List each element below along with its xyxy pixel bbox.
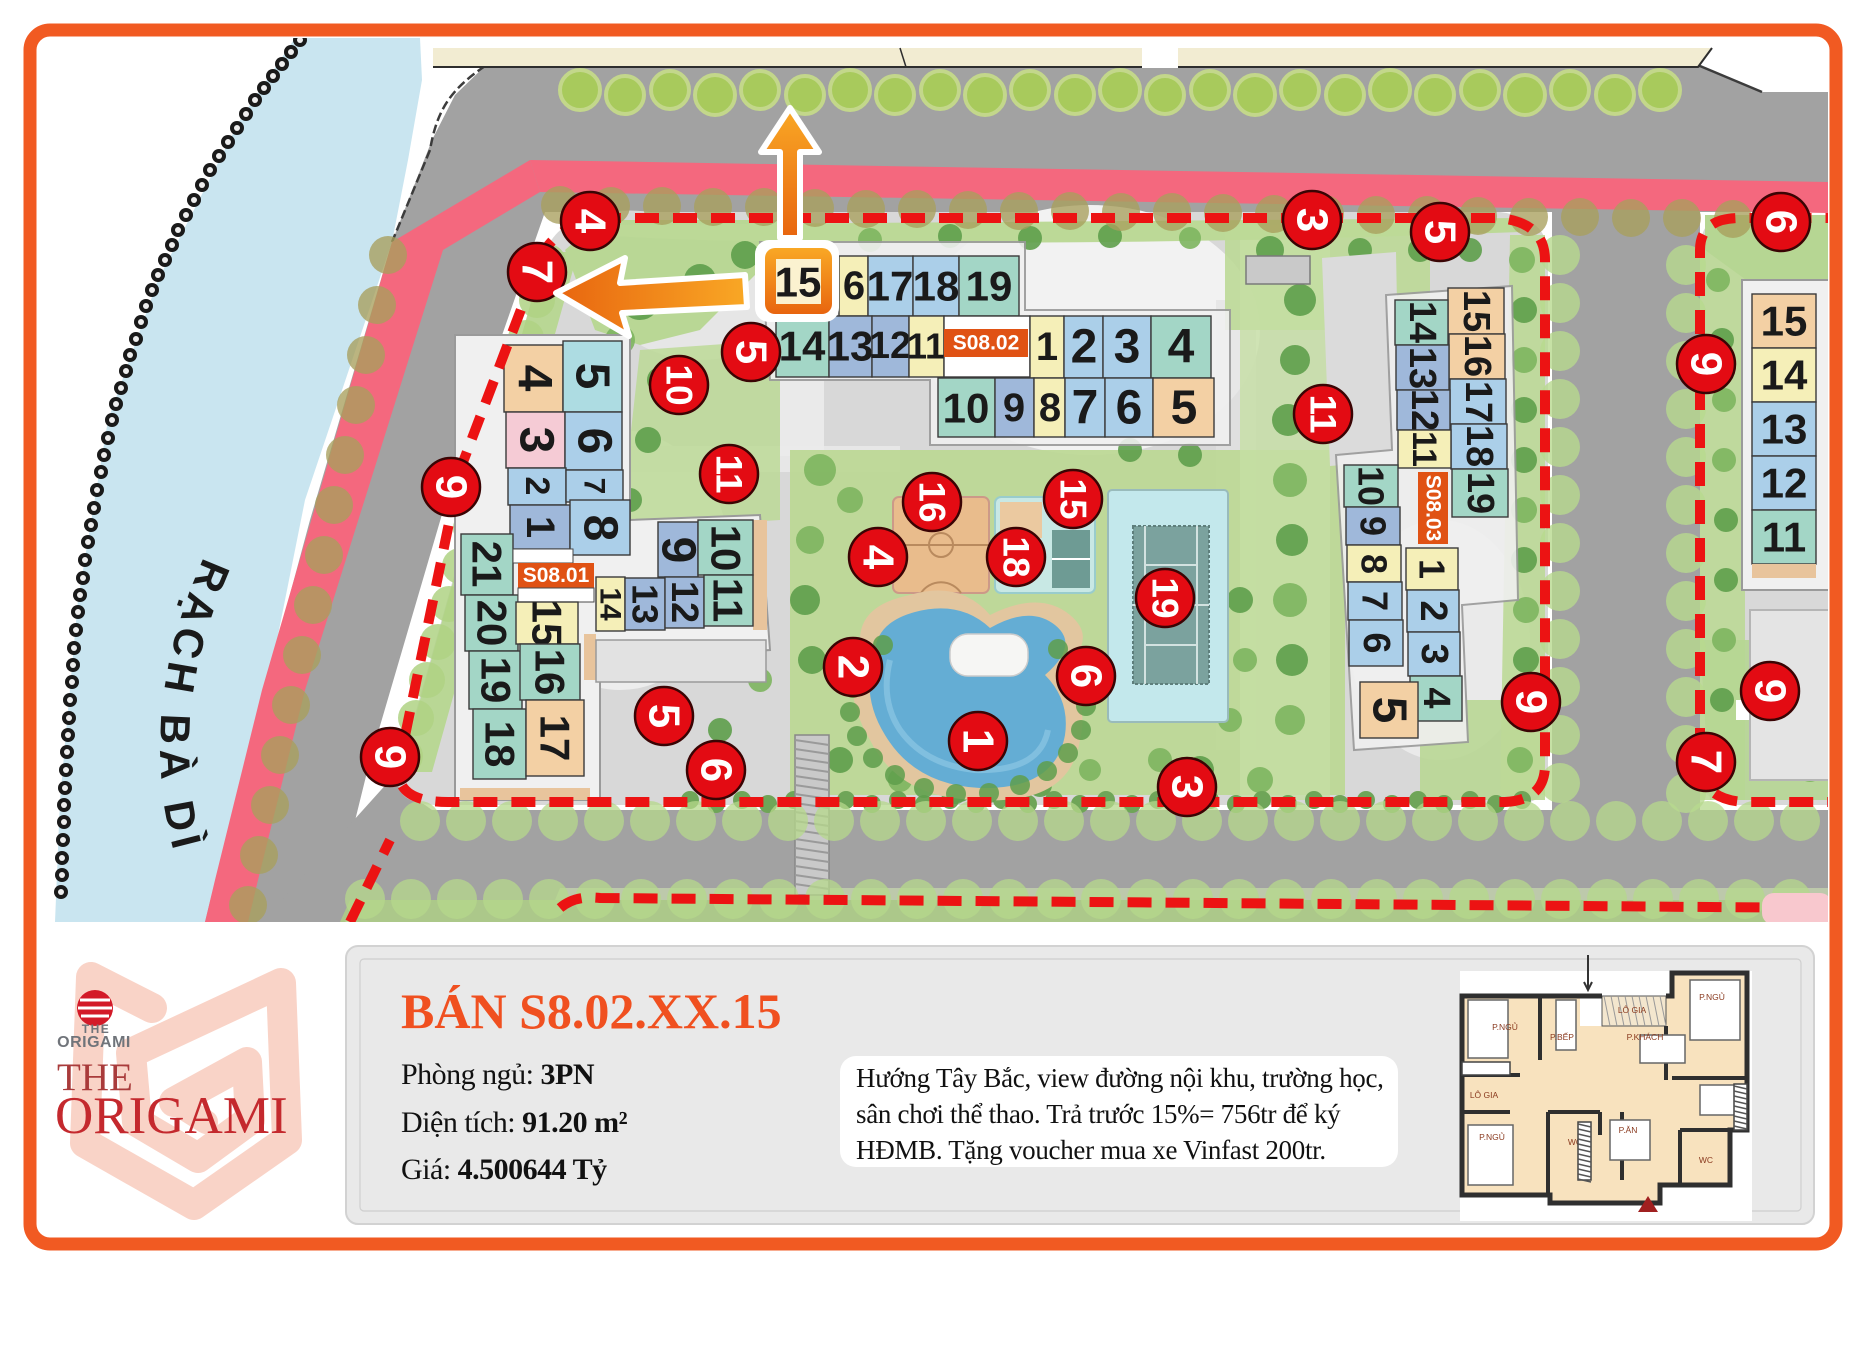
- svg-text:9: 9: [366, 745, 415, 769]
- svg-text:P.NGỦ: P.NGỦ: [1492, 1021, 1518, 1032]
- svg-text:3: 3: [1114, 321, 1141, 374]
- svg-text:S08.03: S08.03: [1422, 475, 1445, 542]
- svg-text:13: 13: [1401, 347, 1443, 389]
- svg-text:ORIGAMI: ORIGAMI: [57, 1034, 131, 1051]
- svg-text:15: 15: [1053, 478, 1094, 519]
- svg-text:18: 18: [477, 721, 524, 768]
- svg-text:18: 18: [913, 263, 960, 310]
- svg-text:10: 10: [1351, 466, 1392, 506]
- svg-text:5: 5: [727, 340, 776, 364]
- svg-text:9: 9: [1507, 690, 1556, 714]
- svg-text:2: 2: [518, 477, 556, 496]
- svg-text:11: 11: [907, 326, 945, 367]
- svg-text:P.NGỦ: P.NGỦ: [1699, 991, 1725, 1002]
- svg-text:6: 6: [692, 758, 741, 782]
- svg-text:9: 9: [1353, 516, 1394, 536]
- svg-text:9: 9: [427, 475, 476, 499]
- svg-text:13: 13: [625, 584, 666, 624]
- svg-text:6: 6: [843, 264, 865, 308]
- svg-text:5: 5: [1416, 220, 1465, 244]
- svg-text:3: 3: [1163, 775, 1212, 799]
- svg-text:18: 18: [996, 536, 1037, 577]
- svg-text:17: 17: [532, 715, 579, 762]
- svg-text:7: 7: [1072, 382, 1099, 435]
- svg-text:8: 8: [574, 515, 627, 542]
- svg-text:12: 12: [663, 581, 705, 623]
- svg-text:1: 1: [954, 729, 1003, 753]
- svg-text:15: 15: [1455, 290, 1497, 332]
- svg-text:12: 12: [869, 325, 911, 367]
- svg-text:Phòng ngủ: 3PN: Phòng ngủ: 3PN: [401, 1058, 595, 1091]
- svg-text:WC: WC: [1699, 1155, 1713, 1165]
- svg-text:10: 10: [943, 385, 990, 432]
- svg-text:9: 9: [652, 537, 705, 564]
- svg-text:18: 18: [1458, 425, 1500, 467]
- svg-text:17: 17: [867, 263, 914, 310]
- svg-text:BÁN S8.02.XX.15: BÁN S8.02.XX.15: [401, 983, 782, 1039]
- svg-text:21: 21: [464, 541, 511, 588]
- svg-text:16: 16: [1456, 335, 1498, 377]
- svg-text:7: 7: [578, 478, 611, 495]
- svg-text:6: 6: [1355, 632, 1397, 653]
- svg-text:1: 1: [1036, 325, 1058, 369]
- svg-text:19: 19: [966, 263, 1013, 310]
- svg-text:2: 2: [1071, 321, 1098, 374]
- svg-text:3: 3: [1288, 208, 1337, 232]
- svg-text:4: 4: [1415, 687, 1457, 708]
- svg-text:3: 3: [510, 427, 563, 454]
- svg-text:P.KHÁCH: P.KHÁCH: [1627, 1032, 1664, 1042]
- svg-text:2: 2: [1412, 600, 1454, 621]
- svg-text:8: 8: [1354, 554, 1395, 574]
- svg-text:11: 11: [1405, 431, 1443, 467]
- svg-text:3: 3: [1413, 643, 1455, 664]
- svg-text:11: 11: [705, 578, 752, 622]
- svg-text:LÔ GIA: LÔ GIA: [1618, 1005, 1647, 1015]
- svg-text:10: 10: [703, 525, 750, 572]
- svg-text:1: 1: [1412, 559, 1453, 579]
- svg-text:Giá: 4.500644 Tỷ: Giá: 4.500644 Tỷ: [401, 1153, 607, 1186]
- svg-text:8: 8: [1039, 386, 1061, 430]
- svg-text:15: 15: [524, 600, 571, 647]
- svg-text:12: 12: [1403, 389, 1445, 431]
- svg-text:14: 14: [1401, 301, 1443, 343]
- svg-text:7: 7: [1355, 591, 1396, 611]
- svg-text:4: 4: [566, 209, 615, 234]
- svg-text:1: 1: [518, 516, 562, 538]
- svg-text:LÔ GIA: LÔ GIA: [1470, 1090, 1499, 1100]
- svg-text:5: 5: [1171, 382, 1198, 435]
- svg-text:6: 6: [1757, 210, 1806, 234]
- svg-text:6: 6: [568, 428, 621, 455]
- svg-text:9: 9: [1682, 352, 1731, 376]
- svg-text:6: 6: [1062, 664, 1111, 688]
- svg-text:11: 11: [709, 454, 750, 493]
- svg-text:13: 13: [827, 323, 874, 370]
- svg-text:20: 20: [469, 600, 516, 647]
- svg-text:2: 2: [829, 655, 878, 679]
- svg-text:19: 19: [473, 657, 520, 704]
- svg-text:4: 4: [1168, 321, 1195, 374]
- svg-text:5: 5: [566, 363, 619, 390]
- svg-text:ORIGAMI: ORIGAMI: [55, 1087, 288, 1145]
- svg-text:14: 14: [1761, 352, 1808, 399]
- svg-text:Diện tích: 91.20 m²: Diện tích: 91.20 m²: [401, 1106, 628, 1139]
- svg-text:4: 4: [508, 365, 561, 392]
- svg-text:P.BẾP: P.BẾP: [1550, 1032, 1574, 1042]
- svg-text:P.NGỦ: P.NGỦ: [1479, 1131, 1505, 1142]
- svg-text:13: 13: [1761, 406, 1808, 453]
- svg-text:19: 19: [1459, 472, 1501, 514]
- svg-text:12: 12: [1761, 460, 1808, 507]
- svg-text:S08.01: S08.01: [523, 564, 590, 587]
- svg-text:7: 7: [1682, 750, 1731, 774]
- svg-text:HĐMB. Tặng voucher mua xe Vinf: HĐMB. Tặng voucher mua xe Vinfast 200tr.: [856, 1135, 1326, 1165]
- svg-text:9: 9: [1003, 386, 1025, 430]
- svg-text:15: 15: [1761, 298, 1808, 345]
- svg-text:11: 11: [1762, 514, 1806, 561]
- svg-text:P.ĂN: P.ĂN: [1619, 1125, 1638, 1135]
- svg-text:4: 4: [854, 545, 903, 570]
- svg-text:9: 9: [1746, 679, 1795, 703]
- svg-text:15: 15: [775, 259, 822, 306]
- svg-text:19: 19: [1145, 577, 1186, 618]
- svg-text:sân chơi thể thao. Trả trước 1: sân chơi thể thao. Trả trước 15%= 756tr …: [856, 1099, 1341, 1129]
- svg-text:5: 5: [1363, 697, 1416, 724]
- svg-text:7: 7: [513, 260, 562, 284]
- svg-text:5: 5: [640, 704, 689, 728]
- svg-text:Hướng Tây Bắc, view đường nội: Hướng Tây Bắc, view đường nội khu, trườn…: [856, 1063, 1384, 1093]
- svg-text:16: 16: [912, 481, 953, 522]
- svg-text:6: 6: [1116, 382, 1143, 435]
- svg-text:14: 14: [779, 323, 826, 370]
- svg-text:S08.02: S08.02: [953, 332, 1020, 355]
- svg-text:14: 14: [594, 587, 627, 621]
- svg-text:17: 17: [1457, 381, 1499, 423]
- svg-text:10: 10: [659, 364, 700, 405]
- svg-text:16: 16: [527, 649, 574, 696]
- svg-text:11: 11: [1303, 394, 1344, 433]
